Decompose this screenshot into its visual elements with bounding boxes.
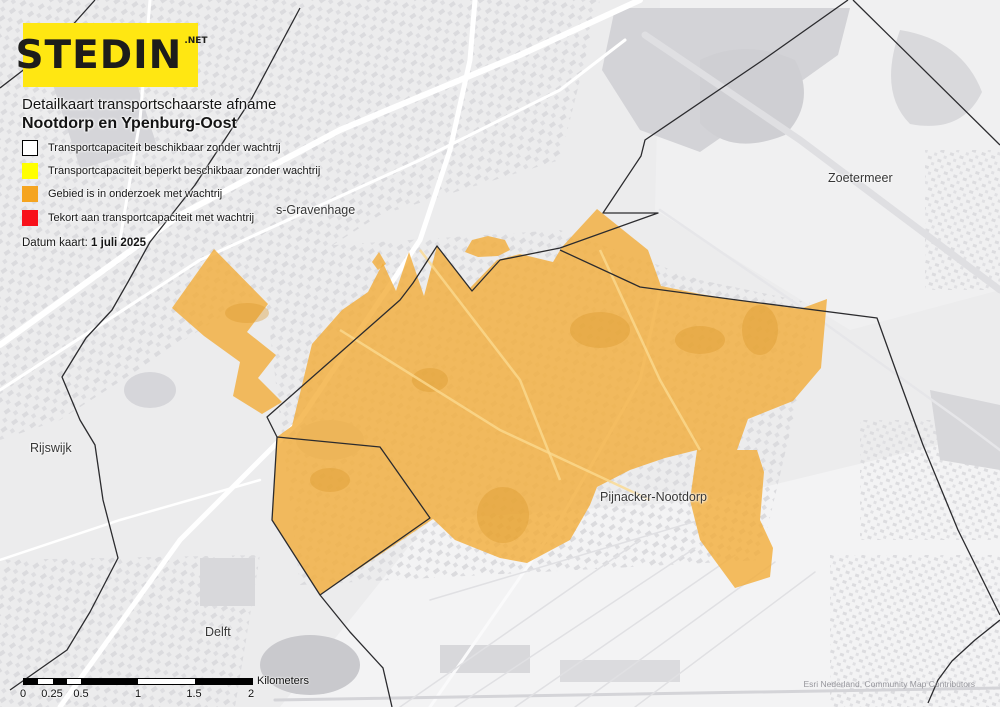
- map-date-value: 1 juli 2025: [91, 237, 146, 249]
- map-label-rijswijk: Rijswijk: [30, 441, 72, 455]
- legend-row-under-review: Gebied is in onderzoek met wachtrij: [22, 185, 222, 202]
- legend-label-available: Transportcapaciteit beschikbaar zonder w…: [48, 142, 281, 154]
- legend-row-limited: Transportcapaciteit beperkt beschikbaar …: [22, 162, 320, 179]
- legend-label-limited: Transportcapaciteit beperkt beschikbaar …: [48, 165, 320, 177]
- map-label-pijnacker-nootdorp: Pijnacker-Nootdorp: [600, 490, 707, 504]
- map-attribution: Esri Nederland, Community Map Contributo…: [804, 679, 975, 689]
- legend-swatch-shortage: [22, 210, 38, 226]
- scale-tick-0: 0: [20, 688, 26, 700]
- map-label-s-gravenhage: s-Gravenhage: [276, 203, 355, 217]
- map-title: Detailkaart transportschaarste afname No…: [22, 96, 276, 133]
- scale-bar: 0 0.25 0.5 1 1.5 2 Kilometers: [23, 677, 343, 703]
- legend-row-available: Transportcapaciteit beschikbaar zonder w…: [22, 139, 281, 156]
- legend-label-shortage: Tekort aan transportcapaciteit met wacht…: [48, 212, 254, 224]
- scale-tick-1: 1: [135, 688, 141, 700]
- detail-map-document: s-Gravenhage Zoetermeer Rijswijk Pijnack…: [0, 0, 1000, 707]
- map-title-line2: Nootdorp en Ypenburg-Oost: [22, 115, 276, 133]
- legend-swatch-under-review: [22, 186, 38, 202]
- scale-tick-025: 0.25: [41, 688, 62, 700]
- stedin-logo-net-suffix: .NET: [184, 36, 207, 46]
- map-label-delft: Delft: [205, 625, 231, 639]
- scale-tick-05: 0.5: [73, 688, 88, 700]
- scale-tick-2: 2: [248, 688, 254, 700]
- scale-bar-track: [23, 678, 253, 685]
- stedin-logo-text: STEDIN: [15, 36, 182, 75]
- map-date-prefix: Datum kaart:: [22, 237, 91, 249]
- legend-swatch-limited: [22, 163, 38, 179]
- map-date: Datum kaart: 1 juli 2025: [22, 237, 146, 249]
- scale-unit-label: Kilometers: [257, 675, 309, 687]
- legend-swatch-available: [22, 140, 38, 156]
- map-title-line1: Detailkaart transportschaarste afname: [22, 96, 276, 113]
- map-label-zoetermeer: Zoetermeer: [828, 171, 893, 185]
- legend-label-under-review: Gebied is in onderzoek met wachtrij: [48, 188, 222, 200]
- scale-tick-15: 1.5: [186, 688, 201, 700]
- stedin-logo: STEDIN.NET: [23, 23, 198, 87]
- legend-row-shortage: Tekort aan transportcapaciteit met wacht…: [22, 209, 254, 226]
